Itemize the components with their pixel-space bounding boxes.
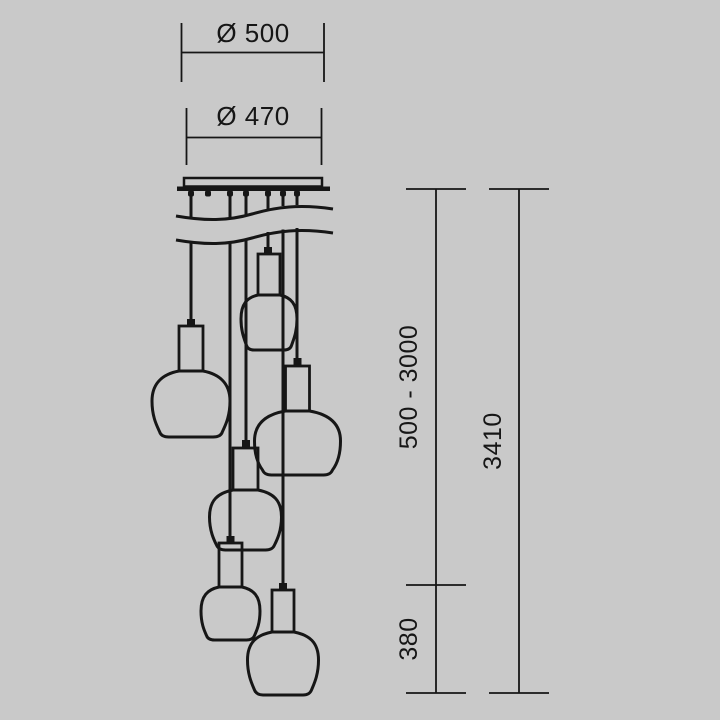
- lamp-shade: [201, 587, 260, 640]
- lamp-shade: [152, 371, 230, 437]
- pendant-lamp-dimension-drawing: Ø 500 Ø 470: [0, 0, 720, 720]
- break-lines: [176, 207, 333, 244]
- pendant-lamp-a: [152, 319, 230, 437]
- pendant-lamp-b: [241, 247, 297, 350]
- cord-grip: [205, 191, 211, 197]
- lamp-shade: [241, 295, 297, 350]
- pendant-lamp-d: [210, 440, 282, 550]
- lamp-shade: [255, 411, 341, 475]
- canopy-bar: [177, 187, 330, 192]
- pendant-lamp-e: [201, 536, 260, 640]
- dim-label-adjustable-height: 500 - 3000: [395, 325, 423, 450]
- pendant-lamp-c: [255, 358, 341, 475]
- ceiling-canopy: [177, 178, 330, 197]
- lamp-socket: [179, 326, 203, 371]
- break-line-upper: [176, 207, 333, 220]
- dim-label-canopy-outer: Ø 500: [216, 18, 289, 48]
- lamp-shade: [248, 632, 319, 695]
- lamp-socket: [272, 590, 294, 632]
- diagram-stage: Ø 500 Ø 470: [0, 0, 720, 720]
- dim-label-canopy-inner: Ø 470: [216, 101, 289, 131]
- canopy-plate: [184, 178, 322, 187]
- dim-label-overall-height: 3410: [479, 412, 507, 470]
- lamp-socket: [286, 366, 310, 411]
- lamp-socket: [258, 254, 280, 295]
- break-line-lower: [176, 231, 333, 244]
- dim-label-lamp-height: 380: [395, 617, 423, 660]
- lamp-shade: [210, 490, 282, 550]
